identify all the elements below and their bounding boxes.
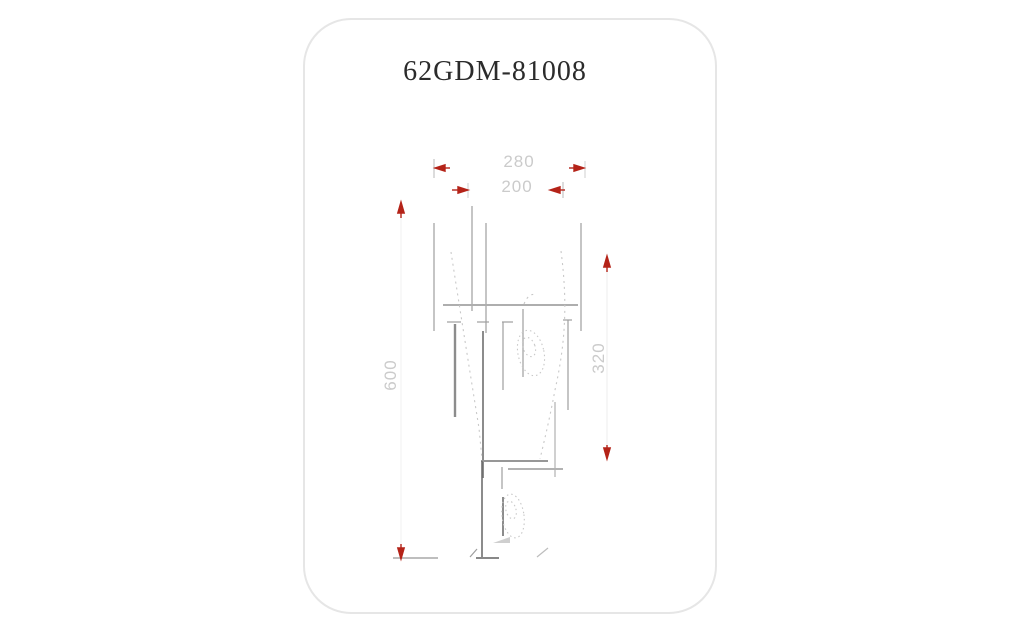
dim-width-inner: 200 [501, 177, 532, 196]
object-lines [434, 206, 581, 558]
finial-wedge [493, 537, 510, 543]
dim-width-outer: 280 [503, 152, 534, 171]
dimension-connector-lines [401, 218, 607, 545]
technical-drawing: 280 200 600 320 [0, 0, 1024, 640]
object-line [470, 549, 477, 557]
shade-outline-right [540, 251, 565, 459]
dim-height-body: 320 [589, 342, 608, 373]
curl-detail [524, 294, 536, 304]
phantom-lines [451, 251, 565, 539]
dimension-labels: 280 200 600 320 [381, 152, 608, 391]
arrowhead-up-icon [604, 256, 610, 267]
arrowhead-right-icon [574, 165, 584, 171]
ornament-upper [514, 328, 549, 378]
arrowhead-left-icon [435, 165, 445, 171]
ornament-lower-inner [504, 500, 518, 520]
page-background: 62GDM-81008 [0, 0, 1024, 640]
arrowhead-up-icon [398, 202, 404, 213]
arrowhead-left-icon [550, 187, 560, 193]
dim-height-overall: 600 [381, 359, 400, 390]
arrowhead-down-icon [604, 448, 610, 459]
extension-ticks [393, 159, 585, 558]
object-line [537, 548, 548, 557]
arrowhead-right-icon [458, 187, 468, 193]
